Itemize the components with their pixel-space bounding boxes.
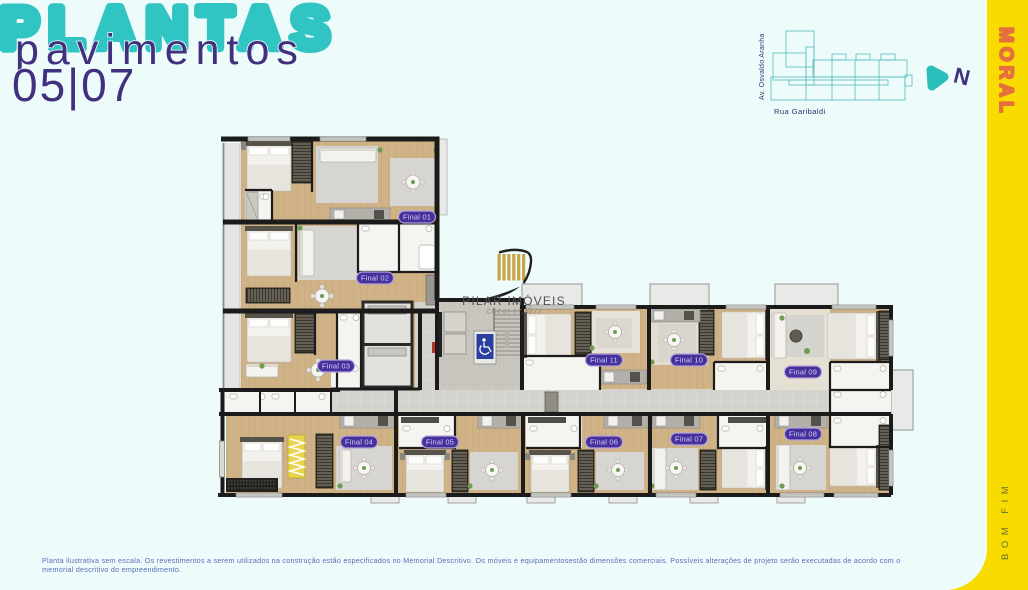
svg-text:Av. Osvaldo Aranha: Av. Osvaldo Aranha — [759, 33, 766, 100]
svg-text:CRECI 27.437J: CRECI 27.437J — [486, 309, 542, 316]
svg-text:Final 03: Final 03 — [322, 362, 350, 371]
svg-text:N: N — [951, 62, 972, 90]
svg-text:Final 08: Final 08 — [789, 430, 817, 439]
svg-text:Planta ilustrativa sem escala.: Planta ilustrativa sem escala. Os revest… — [42, 556, 900, 565]
svg-text:Final 01: Final 01 — [403, 213, 431, 222]
svg-text:Rua Garibaldi: Rua Garibaldi — [774, 107, 826, 116]
svg-text:MORAL: MORAL — [995, 27, 1016, 117]
svg-text:Final 11: Final 11 — [590, 356, 618, 365]
svg-text:Final 04: Final 04 — [345, 438, 373, 447]
svg-text:Final 09: Final 09 — [789, 368, 817, 377]
svg-text:memorial descritivo do empreen: memorial descritivo do empreendimento. — [42, 565, 181, 574]
svg-text:Final 06: Final 06 — [590, 438, 618, 447]
svg-text:BOM FIM: BOM FIM — [1000, 481, 1011, 560]
svg-text:Final 02: Final 02 — [361, 274, 389, 283]
svg-text:Final 10: Final 10 — [675, 356, 703, 365]
svg-text:PILAR IMÓVEIS: PILAR IMÓVEIS — [462, 293, 566, 308]
svg-text:05|07: 05|07 — [12, 59, 136, 111]
svg-text:Final 07: Final 07 — [675, 435, 703, 444]
svg-text:Final 05: Final 05 — [426, 438, 454, 447]
